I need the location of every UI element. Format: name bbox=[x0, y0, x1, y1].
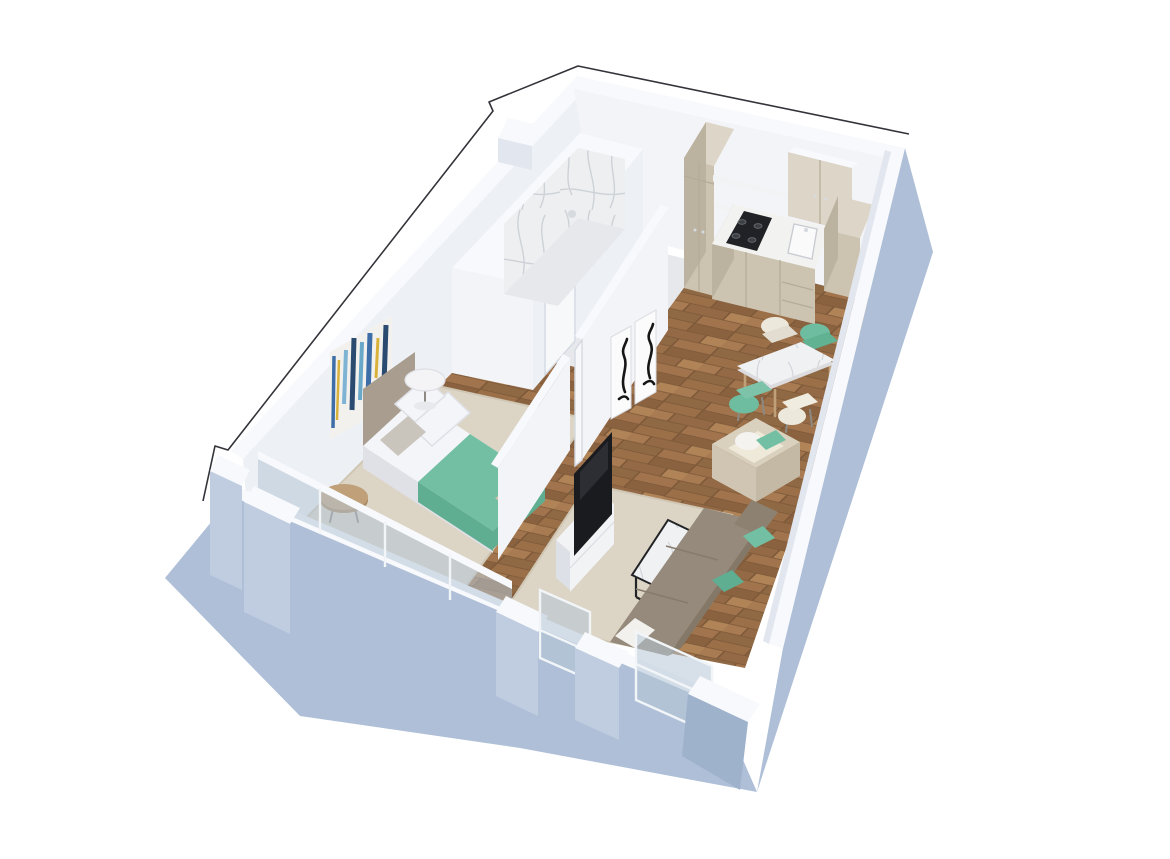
floor-plan-canvas bbox=[0, 0, 1170, 859]
side-table-top bbox=[405, 369, 445, 391]
window-pier-face bbox=[244, 502, 290, 634]
kitchen-sink bbox=[788, 224, 817, 259]
shower-head-icon bbox=[568, 210, 576, 218]
art-streak bbox=[376, 338, 378, 378]
side-table-base bbox=[414, 402, 436, 411]
chair-back bbox=[729, 395, 759, 414]
hob-burner-icon bbox=[748, 238, 756, 243]
art-streak bbox=[360, 342, 362, 400]
pantry-handle bbox=[702, 231, 705, 234]
hob-burner-icon bbox=[754, 224, 762, 229]
corner-pier-left-face bbox=[210, 471, 242, 590]
bedroom-doorway-jamb bbox=[575, 340, 582, 466]
sink-faucet-icon bbox=[804, 228, 808, 232]
floor-plan-render bbox=[0, 0, 1170, 859]
art-streak bbox=[344, 350, 346, 404]
hob-burner-icon bbox=[732, 234, 740, 239]
wall-cabinet-handle bbox=[825, 198, 828, 201]
wall-cabinet-handle bbox=[814, 195, 817, 198]
shower-marble-wall-north bbox=[578, 148, 625, 229]
hob-burner-icon bbox=[738, 220, 746, 225]
art-streak bbox=[352, 338, 354, 410]
art-streak bbox=[333, 356, 334, 428]
pantry-handle bbox=[694, 229, 697, 232]
